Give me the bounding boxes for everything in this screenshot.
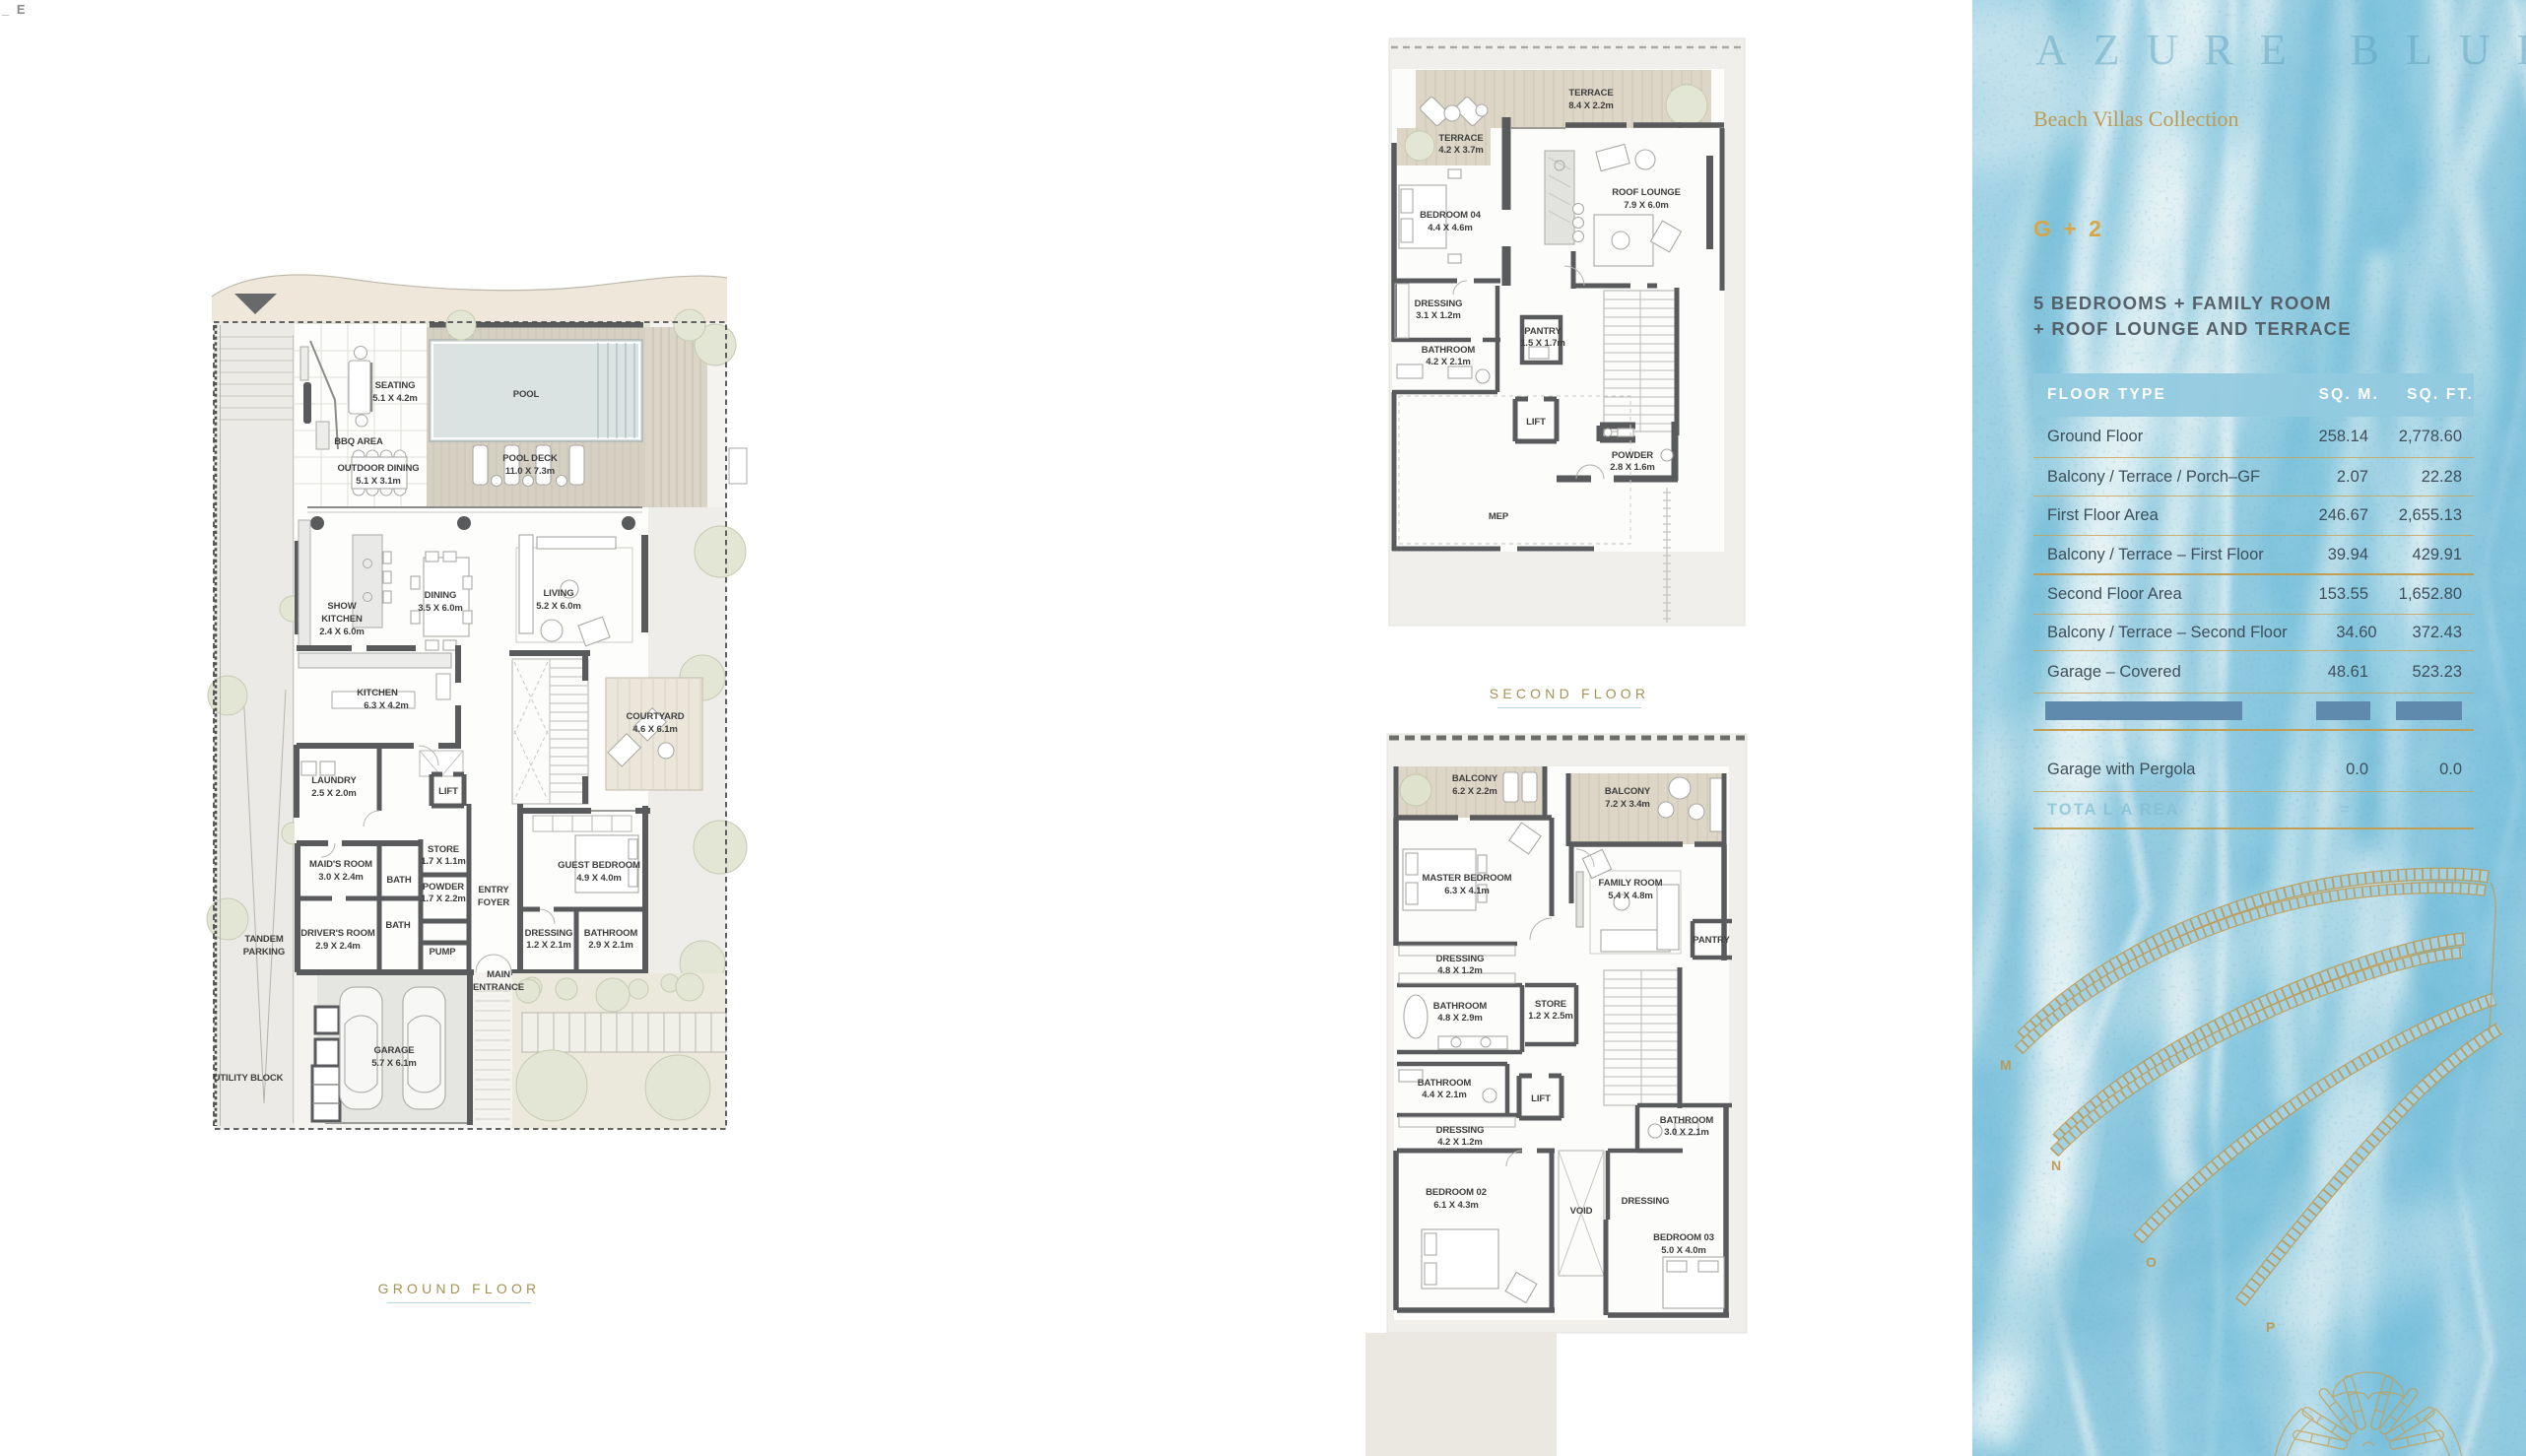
svg-text:DRESSING3.1 X 1.2m: DRESSING3.1 X 1.2m [1415, 298, 1463, 321]
svg-text:TERRACE4.2 X 3.7m: TERRACE4.2 X 3.7m [1438, 133, 1483, 156]
svg-text:LIFT: LIFT [1531, 1093, 1551, 1104]
svg-text:BATHROOM4.4 X 2.1m: BATHROOM4.4 X 2.1m [1418, 1078, 1472, 1100]
svg-text:UTILITY BLOCK: UTILITY BLOCK [214, 1073, 284, 1084]
svg-text:PUMP: PUMP [429, 947, 456, 958]
svg-text:BBQ AREA: BBQ AREA [334, 436, 383, 447]
svg-text:BATHROOM2.9 X 2.1m: BATHROOM2.9 X 2.1m [584, 928, 638, 951]
svg-text:DRESSING1.2 X 2.1m: DRESSING1.2 X 2.1m [525, 928, 573, 951]
svg-text:BATH: BATH [385, 920, 411, 931]
svg-text:P: P [2266, 1319, 2275, 1335]
svg-text:STORE1.2 X 2.5m: STORE1.2 X 2.5m [1528, 999, 1572, 1022]
svg-text:BATH: BATH [386, 875, 412, 886]
svg-text:LIFT: LIFT [438, 786, 458, 797]
svg-text:POWDER2.8 X 1.6m: POWDER2.8 X 1.6m [1610, 450, 1654, 473]
svg-text:N: N [2051, 1158, 2061, 1173]
svg-text:BATHROOM4.8 X 2.9m: BATHROOM4.8 X 2.9m [1433, 1001, 1488, 1024]
svg-text:DRESSING4.2 X 1.2m: DRESSING4.2 X 1.2m [1436, 1125, 1485, 1148]
svg-text:M: M [2000, 1057, 2012, 1073]
svg-text:BATHROOM3.0 X 2.1m: BATHROOM3.0 X 2.1m [1660, 1115, 1714, 1138]
svg-text:PANTRY1.5 X 1.7m: PANTRY1.5 X 1.7m [1520, 326, 1564, 349]
svg-text:MEP: MEP [1489, 511, 1509, 522]
svg-text:BATHROOM4.2 X 2.1m: BATHROOM4.2 X 2.1m [1422, 345, 1476, 367]
svg-text:DRESSING: DRESSING [1622, 1196, 1670, 1207]
svg-text:POWDER1.7 X 2.2m: POWDER1.7 X 2.2m [421, 882, 465, 904]
svg-text:O: O [2146, 1254, 2157, 1270]
svg-text:STORE1.7 X 1.1m: STORE1.7 X 1.1m [421, 844, 465, 867]
svg-text:POOL: POOL [513, 389, 540, 400]
svg-text:DRESSING4.8 X 1.2m: DRESSING4.8 X 1.2m [1436, 954, 1485, 976]
svg-text:LIFT: LIFT [1526, 417, 1546, 428]
svg-text:VOID: VOID [1570, 1206, 1593, 1217]
svg-text:PANTRY: PANTRY [1693, 935, 1730, 946]
